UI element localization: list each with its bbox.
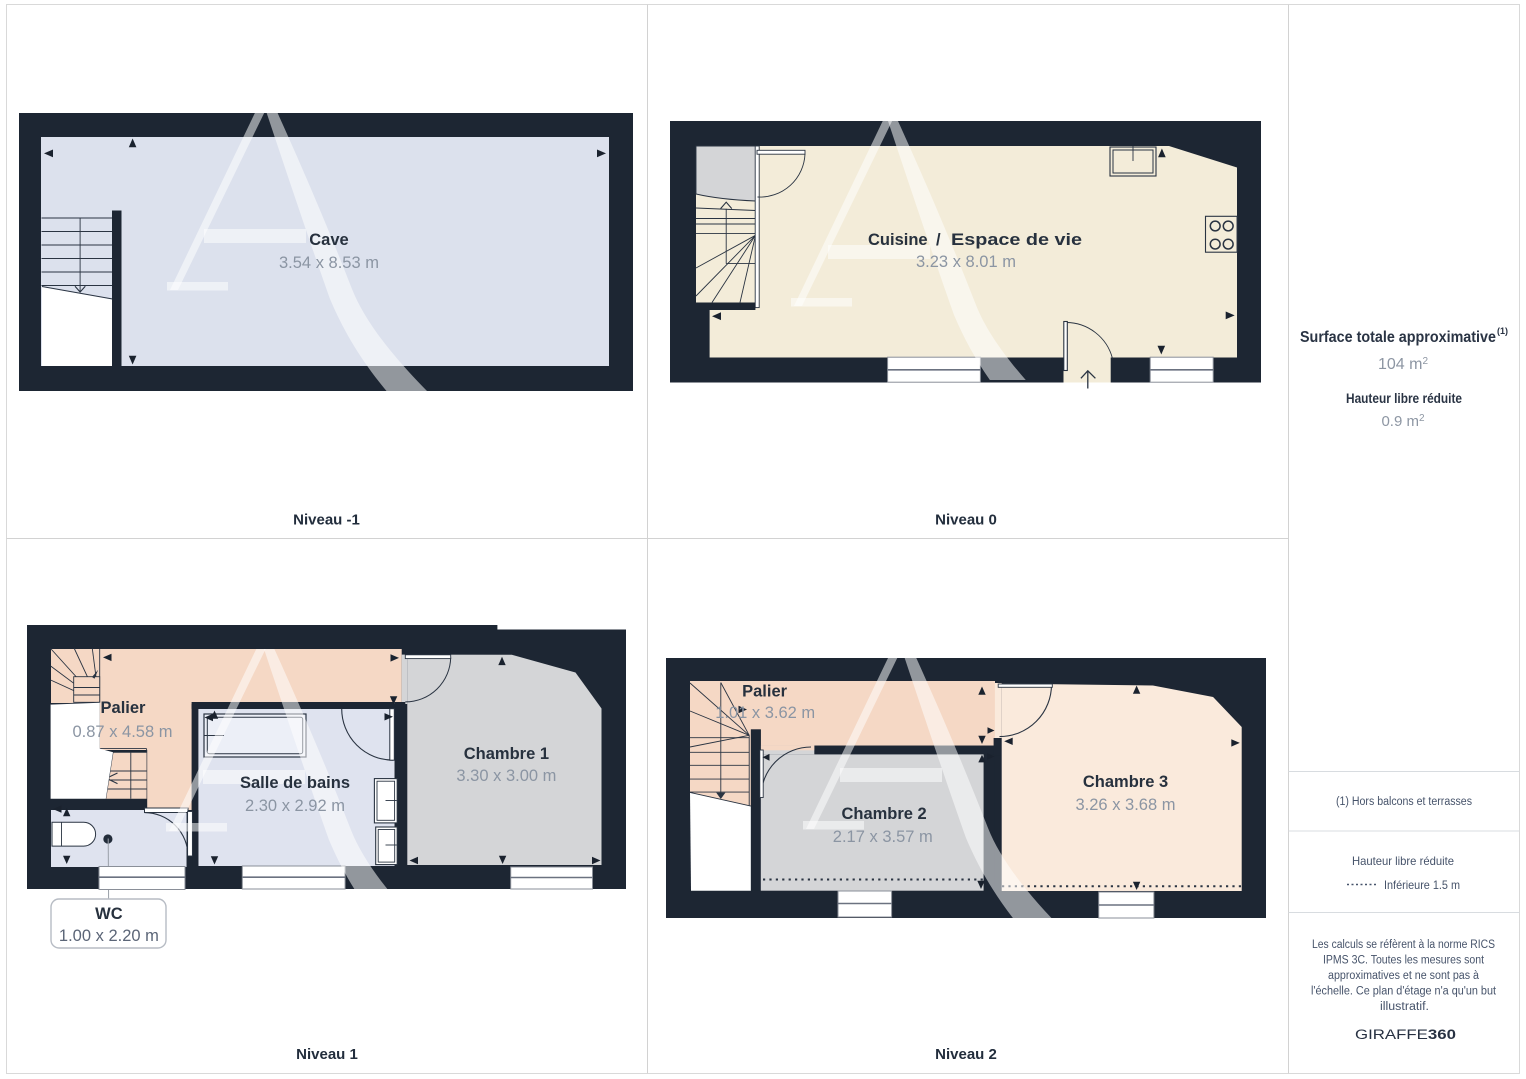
svg-text:3.30 x 3.00 m: 3.30 x 3.00 m xyxy=(456,767,556,785)
svg-text:illustratif.: illustratif. xyxy=(1380,1001,1429,1013)
svg-text:GIRAFFE360: GIRAFFE360 xyxy=(1355,1027,1456,1042)
svg-text:approximatives et ne sont pas: approximatives et ne sont pas à xyxy=(1328,970,1480,982)
svg-text:2.17 x 3.57 m: 2.17 x 3.57 m xyxy=(833,828,933,846)
svg-text:Cuisine: Cuisine xyxy=(868,231,928,249)
svg-text:Surface totale approximative: Surface totale approximative xyxy=(1300,329,1496,346)
svg-text:IPMS 3C. Toutes les mesures so: IPMS 3C. Toutes les mesures sont xyxy=(1323,955,1485,967)
svg-text:1.00 x 2.20 m: 1.00 x 2.20 m xyxy=(59,927,159,945)
svg-text:Chambre 1: Chambre 1 xyxy=(464,745,549,763)
svg-text:3.23 x 8.01 m: 3.23 x 8.01 m xyxy=(916,253,1016,271)
svg-text:3.26 x 3.68 m: 3.26 x 3.68 m xyxy=(1076,796,1176,814)
svg-text:/: / xyxy=(936,231,941,249)
svg-text:104 m2: 104 m2 xyxy=(1378,356,1428,373)
svg-text:Salle de bains: Salle de bains xyxy=(240,774,350,792)
svg-text:(1): (1) xyxy=(1497,326,1508,336)
svg-text:l'échelle. Ce plan d'étage n'a: l'échelle. Ce plan d'étage n'a qu'un but xyxy=(1311,986,1497,998)
svg-text:Hauteur libre réduite: Hauteur libre réduite xyxy=(1352,854,1454,868)
svg-text:Niveau -1: Niveau -1 xyxy=(293,512,360,529)
svg-text:3.54 x 8.53 m: 3.54 x 8.53 m xyxy=(279,254,379,272)
svg-text:Espace de vie: Espace de vie xyxy=(951,231,1082,249)
svg-text:Niveau 1: Niveau 1 xyxy=(296,1046,358,1063)
svg-text:Les calculs se réfèrent à la n: Les calculs se réfèrent à la norme RICS xyxy=(1312,939,1495,951)
svg-text:Niveau 2: Niveau 2 xyxy=(935,1046,997,1063)
svg-text:(1) Hors balcons et terrasses: (1) Hors balcons et terrasses xyxy=(1336,796,1472,808)
svg-text:Palier: Palier xyxy=(101,699,147,717)
svg-text:WC: WC xyxy=(95,905,123,923)
svg-text:2.30 x 2.92 m: 2.30 x 2.92 m xyxy=(245,797,345,815)
svg-text:Hauteur libre réduite: Hauteur libre réduite xyxy=(1346,391,1462,406)
svg-text:0.87 x 4.58 m: 0.87 x 4.58 m xyxy=(73,723,173,741)
svg-text:Cave: Cave xyxy=(309,231,348,249)
svg-text:0.9 m2: 0.9 m2 xyxy=(1381,413,1425,430)
svg-text:Palier: Palier xyxy=(742,683,788,701)
svg-text:Chambre 3: Chambre 3 xyxy=(1083,773,1168,791)
svg-text:1.01 x 3.62 m: 1.01 x 3.62 m xyxy=(715,704,815,722)
svg-text:Chambre 2: Chambre 2 xyxy=(841,805,926,823)
svg-text:Niveau 0: Niveau 0 xyxy=(935,512,997,529)
svg-text:Inférieure 1.5 m: Inférieure 1.5 m xyxy=(1384,878,1460,892)
